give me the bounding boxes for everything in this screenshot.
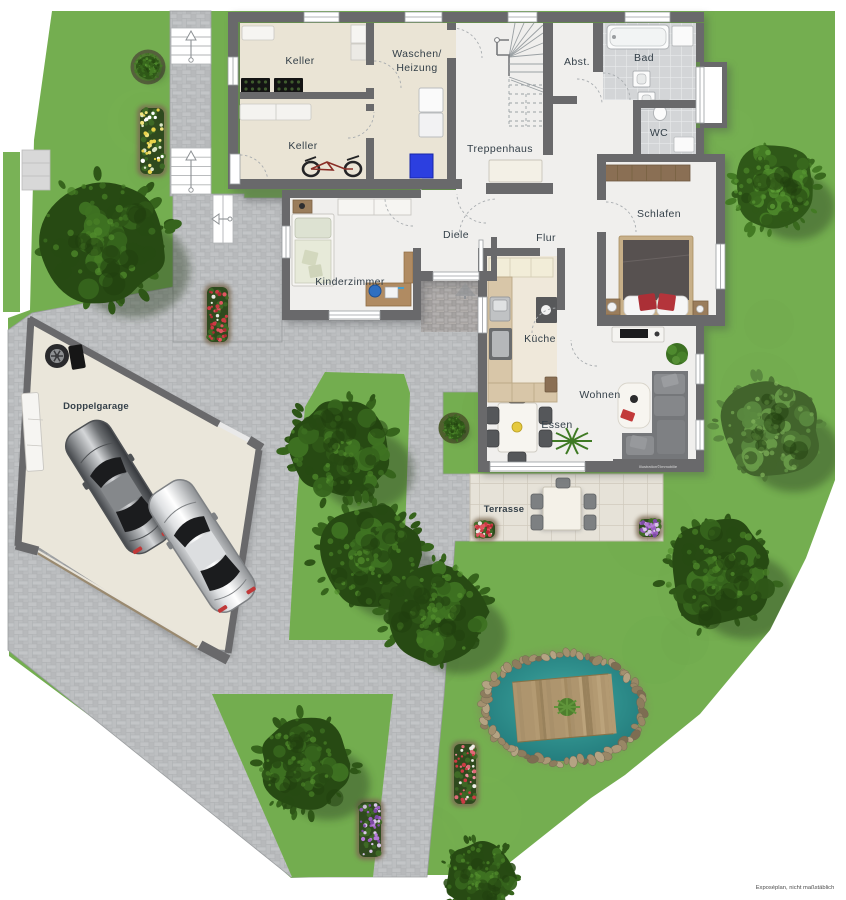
svg-text:Bad: Bad	[634, 52, 654, 64]
svg-text:Keller: Keller	[285, 55, 314, 67]
svg-text:Exposéplan, nicht maßstäblich: Exposéplan, nicht maßstäblich	[756, 885, 835, 891]
svg-text:Waschen/: Waschen/	[392, 48, 442, 60]
svg-text:Keller: Keller	[288, 140, 317, 152]
svg-text:Terrasse: Terrasse	[484, 504, 525, 515]
svg-text:WC: WC	[650, 127, 668, 139]
svg-text:Illustration©Immobilie: Illustration©Immobilie	[639, 464, 678, 469]
svg-text:Heizung: Heizung	[396, 62, 437, 74]
svg-text:Doppelgarage: Doppelgarage	[63, 401, 129, 412]
svg-text:Wohnen: Wohnen	[579, 389, 620, 401]
svg-text:Essen: Essen	[541, 419, 572, 431]
svg-text:Abst.: Abst.	[564, 56, 590, 68]
svg-text:Diele: Diele	[443, 229, 469, 241]
svg-text:Flur: Flur	[536, 232, 556, 244]
svg-text:Treppenhaus: Treppenhaus	[467, 143, 533, 155]
svg-text:Küche: Küche	[524, 333, 556, 345]
svg-text:Schlafen: Schlafen	[637, 208, 681, 220]
svg-text:Kinderzimmer: Kinderzimmer	[315, 276, 385, 288]
